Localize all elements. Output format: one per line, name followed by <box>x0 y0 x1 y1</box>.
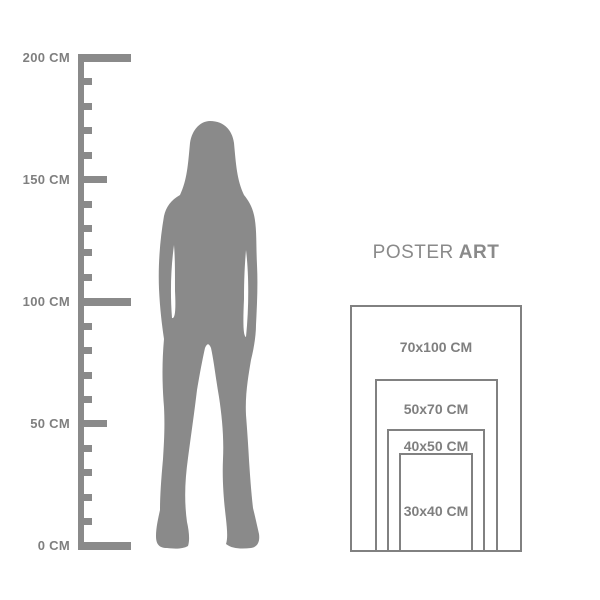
ruler-label-150cm: 150 CM <box>0 172 70 188</box>
ruler-tick-120cm <box>78 249 92 256</box>
poster-size-stack: 70x100 CM50x70 CM40x50 CM30x40 CM <box>350 305 522 552</box>
ruler-tick-160cm <box>78 152 92 159</box>
ruler-tick-20cm <box>78 494 92 501</box>
poster-title-bold: ART <box>459 242 500 263</box>
ruler-tick-200cm <box>78 54 131 62</box>
ruler-tick-110cm <box>78 274 92 281</box>
height-ruler: 200 CM150 CM100 CM50 CM0 CM <box>0 0 140 600</box>
ruler-label-0cm: 0 CM <box>0 538 70 554</box>
ruler-tick-80cm <box>78 347 92 354</box>
poster-size-label-70x100: 70x100 CM <box>350 338 522 356</box>
ruler-tick-130cm <box>78 225 92 232</box>
ruler-tick-30cm <box>78 469 92 476</box>
ruler-tick-70cm <box>78 372 92 379</box>
ruler-tick-150cm <box>78 176 107 183</box>
ruler-label-200cm: 200 CM <box>0 50 70 66</box>
ruler-tick-10cm <box>78 518 92 525</box>
ruler-tick-170cm <box>78 127 92 134</box>
ruler-tick-100cm <box>78 298 131 306</box>
ruler-tick-0cm <box>78 542 131 550</box>
ruler-tick-190cm <box>78 78 92 85</box>
poster-size-label-30x40: 30x40 CM <box>350 502 522 520</box>
poster-size-guide-diagram: 200 CM150 CM100 CM50 CM0 CM POSTERART 70… <box>0 0 600 600</box>
ruler-tick-140cm <box>78 201 92 208</box>
ruler-tick-40cm <box>78 445 92 452</box>
ruler-tick-90cm <box>78 323 92 330</box>
ruler-label-50cm: 50 CM <box>0 416 70 432</box>
ruler-tick-50cm <box>78 420 107 427</box>
poster-size-label-40x50: 40x50 CM <box>350 437 522 455</box>
ruler-tick-180cm <box>78 103 92 110</box>
woman-silhouette-icon <box>156 121 268 551</box>
poster-size-label-50x70: 50x70 CM <box>350 400 522 418</box>
ruler-label-100cm: 100 CM <box>0 294 70 310</box>
ruler-tick-60cm <box>78 396 92 403</box>
poster-title-regular: POSTER <box>373 242 454 263</box>
poster-art-title: POSTERART <box>350 243 522 262</box>
